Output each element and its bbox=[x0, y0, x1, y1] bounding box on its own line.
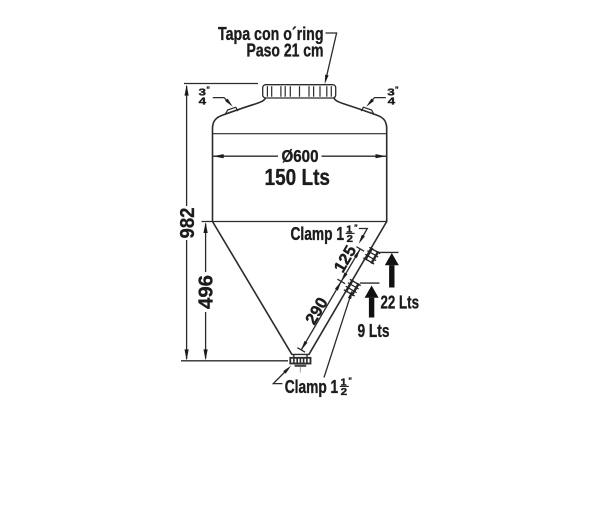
svg-text:”: ” bbox=[348, 376, 352, 385]
svg-text:Ø600: Ø600 bbox=[282, 146, 319, 166]
svg-text:150 Lts: 150 Lts bbox=[265, 164, 331, 190]
svg-text:”: ” bbox=[395, 85, 399, 94]
svg-text:Paso 21 cm: Paso 21 cm bbox=[247, 41, 324, 61]
svg-text:Clamp 1: Clamp 1 bbox=[291, 224, 345, 244]
svg-text:”: ” bbox=[206, 85, 210, 94]
svg-text:496: 496 bbox=[194, 275, 217, 309]
svg-text:4: 4 bbox=[199, 95, 207, 107]
svg-text:2: 2 bbox=[341, 387, 348, 398]
svg-text:22 Lts: 22 Lts bbox=[381, 291, 420, 312]
svg-text:9 Lts: 9 Lts bbox=[358, 320, 390, 341]
svg-text:2: 2 bbox=[347, 234, 354, 245]
svg-text:”: ” bbox=[354, 223, 358, 232]
svg-text:982: 982 bbox=[176, 208, 199, 239]
svg-text:4: 4 bbox=[388, 95, 396, 107]
svg-text:Clamp 1: Clamp 1 bbox=[285, 377, 339, 397]
